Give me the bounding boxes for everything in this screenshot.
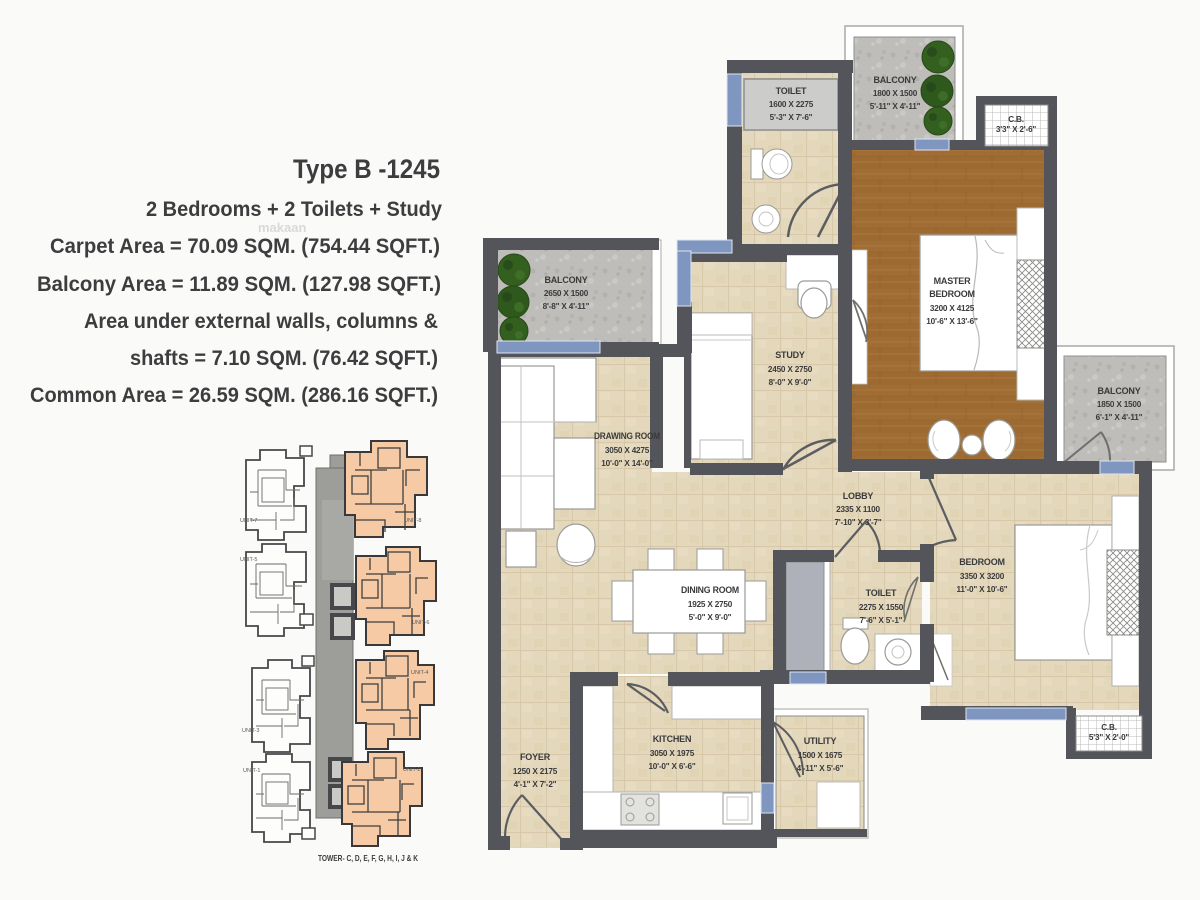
svg-text:5'-0" X 9'-0": 5'-0" X 9'-0" [689,613,732,622]
svg-text:3200 X 4125: 3200 X 4125 [930,304,975,313]
svg-text:BALCONY: BALCONY [873,75,916,85]
svg-text:2450 X 2750: 2450 X 2750 [768,365,813,374]
svg-text:6'-1" X 4'-11": 6'-1" X 4'-11" [1096,413,1143,422]
svg-text:BEDROOM: BEDROOM [959,557,1005,567]
svg-text:10'-0" X 6'-6": 10'-0" X 6'-6" [648,762,695,771]
svg-text:11'-0" X 10'-6": 11'-0" X 10'-6" [957,585,1008,594]
svg-text:Common Area = 26.59 SQM. (286.: Common Area = 26.59 SQM. (286.16 SQFT.) [30,384,438,407]
svg-text:1925 X 2750: 1925 X 2750 [688,600,733,609]
svg-text:3050 X 4275: 3050 X 4275 [605,446,650,455]
svg-text:2650 X 1500: 2650 X 1500 [544,289,589,298]
svg-text:4'-11" X 5'-6": 4'-11" X 5'-6" [797,764,844,773]
svg-text:5'-11" X 4'-11": 5'-11" X 4'-11" [870,102,921,111]
svg-text:10'-6" X 13'-6": 10'-6" X 13'-6" [926,317,978,326]
svg-text:TOWER- C, D, E, F, G, H, I, J: TOWER- C, D, E, F, G, H, I, J & K [318,853,419,863]
svg-text:UNIT-3: UNIT-3 [242,728,259,734]
svg-text:shafts = 7.10 SQM. (76.42 SQFT: shafts = 7.10 SQM. (76.42 SQFT.) [130,347,438,370]
svg-text:BALCONY: BALCONY [1097,386,1140,396]
svg-text:KITCHEN: KITCHEN [653,734,692,744]
svg-text:2 Bedrooms + 2 Toilets + Study: 2 Bedrooms + 2 Toilets + Study [146,198,442,221]
svg-text:MASTER: MASTER [934,276,972,286]
svg-text:UNIT-1: UNIT-1 [243,768,260,774]
svg-text:1800 X 1500: 1800 X 1500 [873,89,918,98]
svg-text:Area under external walls, col: Area under external walls, columns & [84,310,438,333]
svg-text:UNIT-8: UNIT-8 [404,518,421,524]
svg-text:1850 X 1500: 1850 X 1500 [1097,400,1142,409]
svg-text:TOILET: TOILET [866,588,897,598]
svg-text:5'3" X 2'-0": 5'3" X 2'-0" [1089,733,1130,742]
svg-text:7'-10" X 3'-7": 7'-10" X 3'-7" [834,518,881,527]
svg-text:C.B.: C.B. [1008,115,1024,124]
svg-text:8'-0" X 9'-0": 8'-0" X 9'-0" [769,378,812,387]
svg-text:UNIT-6: UNIT-6 [412,620,429,626]
svg-text:1500 X 1675: 1500 X 1675 [798,751,843,760]
svg-text:2275 X 1550: 2275 X 1550 [859,603,904,612]
svg-text:1600 X 2275: 1600 X 2275 [769,100,814,109]
svg-text:5'-3" X 7'-6": 5'-3" X 7'-6" [770,113,813,122]
svg-text:UNIT-7: UNIT-7 [240,518,257,524]
svg-text:DINING ROOM: DINING ROOM [681,585,739,595]
svg-text:3'3" X 2'-6": 3'3" X 2'-6" [996,125,1037,134]
svg-text:C.B.: C.B. [1101,723,1117,732]
svg-text:4'-1" X 7'-2": 4'-1" X 7'-2" [514,780,557,789]
svg-text:TOILET: TOILET [776,86,807,96]
svg-text:LOBBY: LOBBY [843,491,874,501]
svg-text:BALCONY: BALCONY [544,275,587,285]
svg-text:makaan: makaan [258,220,306,235]
svg-text:BEDROOM: BEDROOM [929,289,975,299]
svg-text:2335 X 1100: 2335 X 1100 [836,505,880,514]
svg-text:STUDY: STUDY [775,350,805,360]
svg-text:8'-8" X 4'-11": 8'-8" X 4'-11" [543,302,590,311]
svg-text:UNIT-2: UNIT-2 [403,767,420,773]
svg-text:DRAWING ROOM: DRAWING ROOM [594,431,660,441]
svg-text:3050 X 1975: 3050 X 1975 [650,749,695,758]
svg-text:UNIT-4: UNIT-4 [411,670,428,676]
svg-text:FOYER: FOYER [520,752,551,762]
svg-text:UTILITY: UTILITY [804,736,837,746]
svg-text:7'-6" X 5'-1": 7'-6" X 5'-1" [860,616,903,625]
svg-text:Type B -1245: Type B -1245 [293,154,440,184]
svg-text:Carpet Area = 70.09 SQM. (754.: Carpet Area = 70.09 SQM. (754.44 SQFT.) [50,235,440,258]
svg-text:3350 X 3200: 3350 X 3200 [960,572,1005,581]
svg-text:UNIT-5: UNIT-5 [240,557,257,563]
svg-text:Balcony Area = 11.89 SQM. (127: Balcony Area = 11.89 SQM. (127.98 SQFT.) [37,273,441,296]
svg-text:1250 X 2175: 1250 X 2175 [513,767,558,776]
svg-text:10'-0" X 14'-0": 10'-0" X 14'-0" [601,459,653,468]
